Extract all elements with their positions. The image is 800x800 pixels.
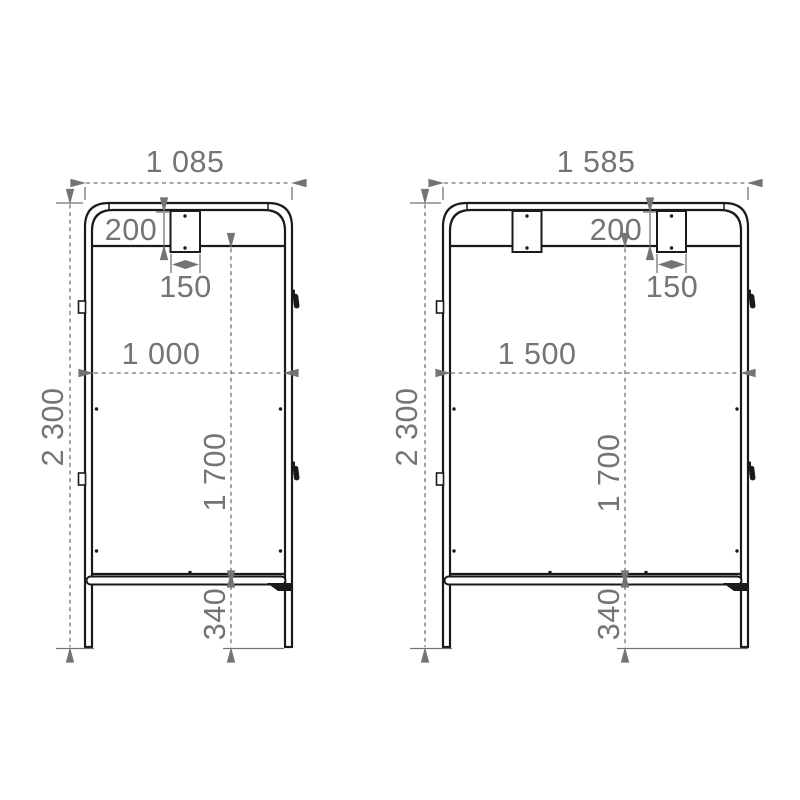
dim-leg-height-label: 340 [198, 588, 232, 640]
dim-total-height-label: 2 300 [390, 388, 424, 467]
dim-leg-height-label: 340 [592, 588, 626, 640]
weld-dot [279, 407, 282, 410]
dim-rail-height-label: 200 [590, 213, 642, 247]
dim-rail-height: 200 [590, 212, 656, 247]
dim-bracket-width-label: 150 [159, 270, 211, 304]
weld-dot [452, 549, 455, 552]
dim-panel-height: 1 700 [592, 249, 626, 573]
bottom-crossbar [445, 577, 742, 585]
dim-bracket-width: 150 [646, 254, 698, 304]
dim-rail-height: 200 [105, 212, 170, 247]
weld-dot [525, 246, 528, 249]
dim-inner-width-label: 1 000 [122, 337, 201, 371]
dim-panel-height-label: 1 700 [198, 433, 232, 512]
technical-drawing-page: 1 085 2 300 200 150 1 000 [0, 0, 800, 800]
weld-dot [735, 407, 738, 410]
weld-dot [183, 246, 186, 249]
dim-rail-height-label: 200 [105, 213, 157, 247]
weld-dot [452, 407, 455, 410]
foot-wedge [723, 583, 747, 591]
weld-dot [183, 214, 186, 217]
weld-dot [644, 571, 647, 574]
frame-variant-1585-drawing: 1 585 2 300 200 150 1 500 [390, 145, 756, 649]
weld-dot [188, 571, 191, 574]
dim-bracket-width-label: 150 [646, 270, 698, 304]
dim-total-width: 1 085 [85, 145, 292, 200]
weld-dot [670, 246, 673, 249]
weld-dot [548, 571, 551, 574]
frame-variant-1085-drawing: 1 085 2 300 200 150 1 000 [36, 145, 300, 649]
dim-inner-width: 1 000 [94, 337, 283, 373]
side-clip [437, 473, 444, 485]
side-clip [79, 301, 86, 313]
dim-leg-height: 340 [198, 586, 284, 649]
technical-drawing-canvas: 1 085 2 300 200 150 1 000 [0, 0, 800, 800]
dim-leg-height: 340 [592, 586, 748, 649]
weld-dot [735, 549, 738, 552]
weld-dot [95, 549, 98, 552]
weld-dot [279, 549, 282, 552]
dim-inner-width: 1 500 [451, 337, 740, 373]
dim-total-width-label: 1 585 [557, 145, 636, 179]
dim-total-width: 1 585 [443, 145, 748, 200]
side-clip [79, 473, 86, 485]
dim-panel-height-label: 1 700 [592, 434, 626, 513]
foot-wedge [267, 583, 291, 591]
side-clip [437, 301, 444, 313]
dim-total-width-label: 1 085 [146, 145, 225, 179]
weld-dot [95, 407, 98, 410]
dim-total-height-label: 2 300 [36, 388, 70, 467]
dim-inner-width-label: 1 500 [498, 337, 577, 371]
weld-dot [525, 214, 528, 217]
bottom-crossbar [87, 577, 286, 585]
weld-dot [670, 214, 673, 217]
dim-bracket-width: 150 [159, 254, 211, 304]
